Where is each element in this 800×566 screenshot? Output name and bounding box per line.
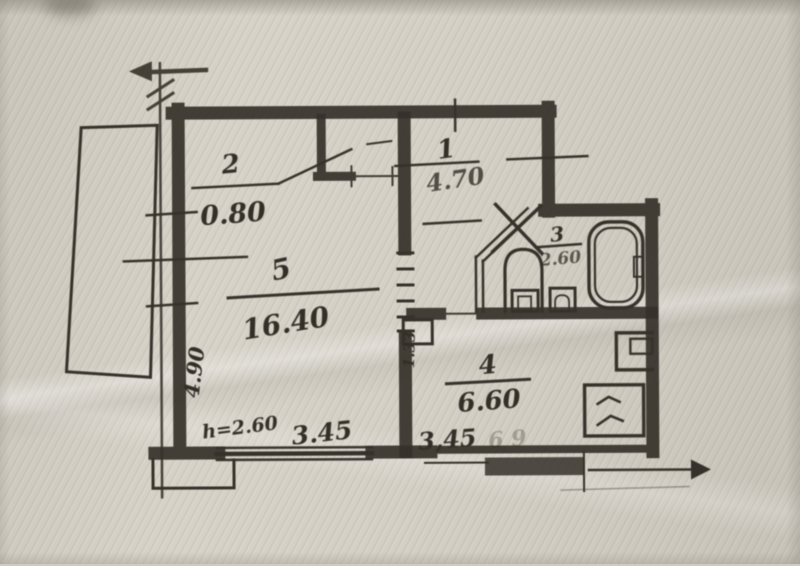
stove-icon (585, 385, 644, 436)
dim-kitchen-width: 3,45 (417, 423, 477, 456)
dim-room5-width: 3.45 (290, 415, 354, 451)
room-number: 1 (435, 134, 457, 166)
room-3-label: 3 2.60 (536, 222, 582, 272)
room-number: 3 (549, 222, 565, 247)
room-5-label: 5 16.40 (228, 251, 378, 347)
dimension-ticks (123, 99, 588, 306)
bathtub-icon (589, 222, 643, 308)
door-cross-icon (493, 204, 542, 253)
room-area: 2.60 (538, 247, 582, 271)
dim-ceiling-height: h=2.60 (201, 412, 279, 443)
direction-arrow-icon (589, 459, 711, 480)
dim-passage-width: 1.33 (400, 331, 419, 368)
room-number: 4 (477, 350, 498, 382)
scanned-paper: 2 0.80 1 4.70 3 2.60 5 16.40 4 6.60 4. (0, 0, 800, 564)
room-area: 16.40 (240, 300, 332, 347)
dim-left-wall: 4.90 (179, 345, 210, 399)
room-number: 2 (219, 149, 241, 181)
room-4-label: 4 6.60 (446, 350, 529, 419)
room-number: 5 (268, 251, 294, 287)
room-area: 0.80 (199, 196, 267, 232)
dim-faint-marks: 6 9 (487, 425, 527, 454)
window-kitchen (425, 452, 585, 492)
room-area: 6.60 (456, 384, 521, 419)
balcony-outline (65, 125, 158, 377)
room-area: 4.70 (424, 161, 486, 198)
balcony-step-outline (153, 456, 689, 492)
room-2-label: 2 0.80 (192, 149, 351, 233)
floor-plan-drawing: 2 0.80 1 4.70 3 2.60 5 16.40 4 6.60 4. (0, 0, 800, 566)
toilet-icon (505, 249, 542, 311)
